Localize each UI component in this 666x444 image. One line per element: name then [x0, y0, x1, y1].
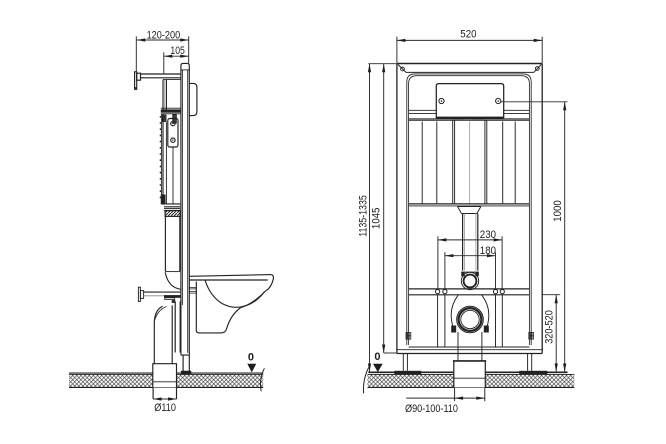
svg-text:1045: 1045: [370, 208, 382, 229]
svg-text:320-520: 320-520: [543, 310, 555, 344]
svg-text:180: 180: [480, 245, 496, 257]
svg-text:0: 0: [248, 351, 254, 363]
svg-text:520: 520: [460, 29, 476, 41]
svg-text:105: 105: [170, 45, 184, 57]
svg-text:230: 230: [480, 229, 496, 241]
svg-text:1135-1335: 1135-1335: [357, 195, 369, 237]
svg-text:1000: 1000: [552, 200, 564, 221]
svg-text:0: 0: [374, 351, 380, 363]
svg-text:Ø90-100-110: Ø90-100-110: [405, 403, 458, 415]
svg-text:Ø110: Ø110: [154, 402, 176, 414]
svg-text:120-200: 120-200: [147, 29, 181, 41]
